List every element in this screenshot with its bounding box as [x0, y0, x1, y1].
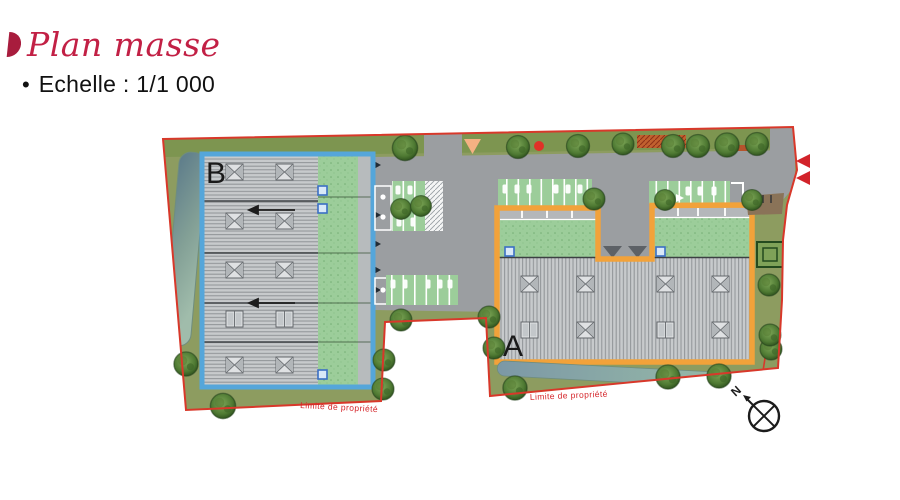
title-row: Plan masse: [8, 28, 221, 61]
access-arrows: [796, 154, 810, 185]
scale-bullet-icon: •: [22, 74, 30, 96]
building-a-label: A: [503, 330, 523, 363]
compass-north-label: N: [728, 383, 744, 399]
boundary-label-right: Limite de propriété: [530, 389, 608, 402]
building-b: [202, 154, 381, 387]
building-b-roof: [204, 156, 318, 385]
building-b-walkway: [358, 156, 371, 385]
page-header: Plan masse • Echelle : 1/1 000: [8, 28, 221, 98]
parking-strip-lower-stalls: [386, 275, 458, 305]
page-title: Plan masse: [27, 28, 221, 61]
scale-label: Echelle : 1/1 000: [39, 71, 215, 98]
driveway-entrance-right: [770, 126, 796, 153]
compass: N: [728, 383, 779, 431]
red-dot-marker: [534, 141, 544, 151]
scale-row: • Echelle : 1/1 000: [22, 71, 221, 98]
title-bullet-icon: [7, 32, 23, 57]
building-a-hall-roof: [499, 257, 750, 361]
site-interior: [163, 126, 797, 410]
building-a-garden-right-texture: [654, 218, 750, 257]
utility-enclosure: [757, 242, 783, 267]
building-b-label: B: [206, 157, 226, 190]
